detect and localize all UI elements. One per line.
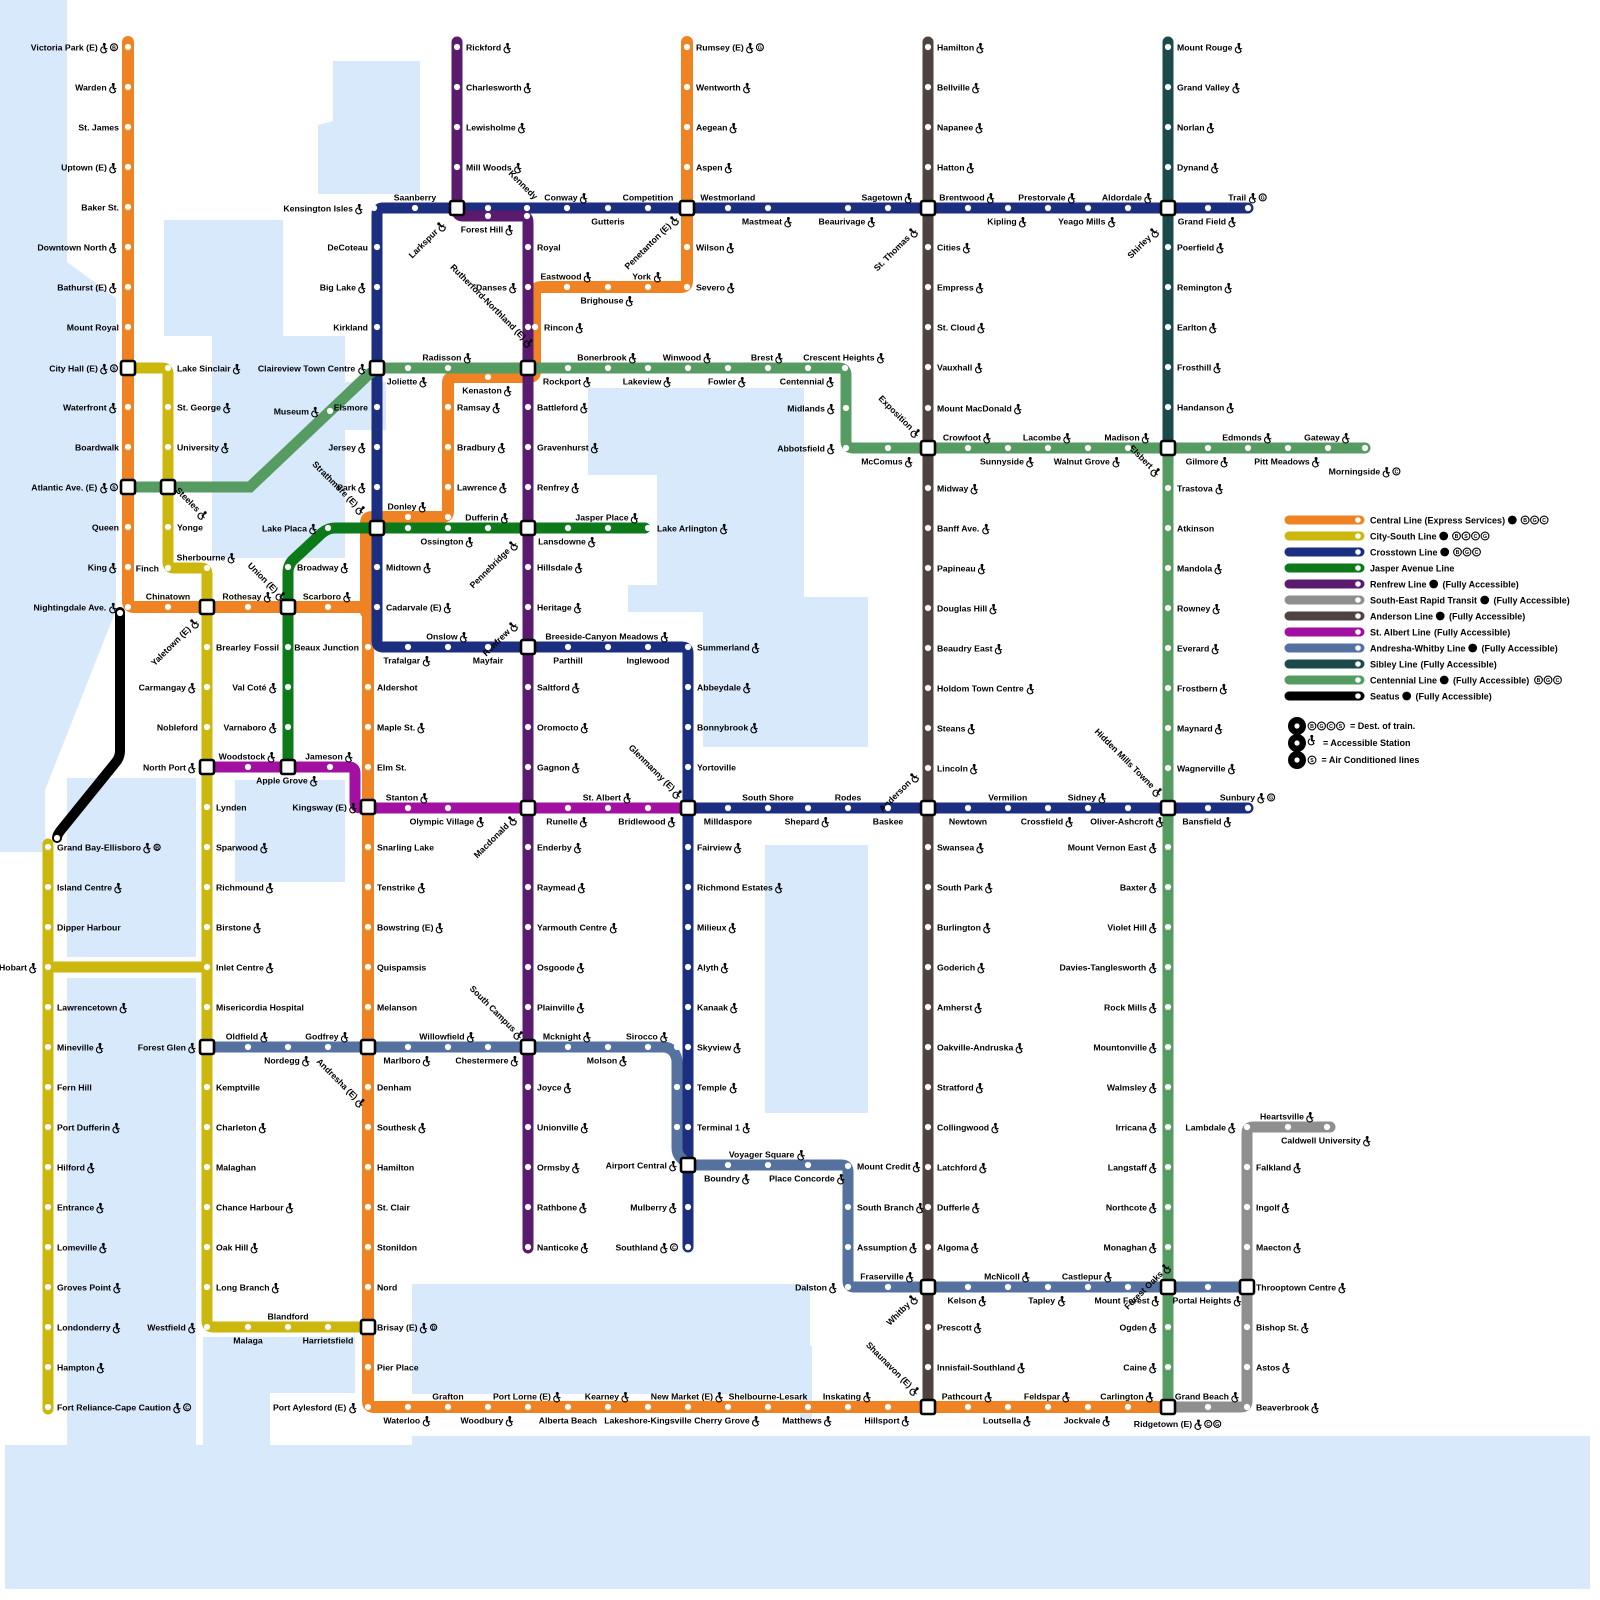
svg-text:Port Dufferin: Port Dufferin (57, 1122, 110, 1132)
svg-text:Handanson: Handanson (1177, 402, 1224, 412)
svg-text:Westmorland: Westmorland (700, 193, 755, 203)
svg-text:Dipper Harbour: Dipper Harbour (57, 922, 121, 932)
svg-text:Rincon: Rincon (544, 322, 573, 332)
svg-text:Midway: Midway (937, 483, 969, 493)
svg-text:Uptown (E): Uptown (E) (61, 162, 107, 172)
svg-text:B: B (1537, 678, 1541, 684)
svg-text:Heritage: Heritage (537, 602, 572, 612)
svg-text:Grand Bay-Ellisboro: Grand Bay-Ellisboro (57, 842, 141, 852)
svg-text:B: B (112, 46, 116, 52)
svg-text:Aspen: Aspen (696, 162, 723, 172)
svg-text:Lake Placa: Lake Placa (262, 523, 307, 533)
svg-text:King: King (88, 562, 107, 572)
svg-text:Rockport: Rockport (543, 377, 581, 387)
svg-text:Nanticoke: Nanticoke (537, 1242, 579, 1252)
svg-text:Lacombe: Lacombe (1023, 433, 1061, 443)
svg-text:Cherry Grove: Cherry Grove (694, 1416, 750, 1426)
svg-text:Centennial Line: Centennial Line (1370, 675, 1437, 685)
svg-text:Andresha (E): Andresha (E) (315, 1056, 360, 1101)
svg-text:Cadarvale (E): Cadarvale (E) (386, 602, 442, 612)
svg-text:Union (E): Union (E) (246, 560, 280, 594)
svg-text:Atkinson: Atkinson (1177, 523, 1214, 533)
svg-text:Poerfield: Poerfield (1177, 242, 1214, 252)
svg-text:Mountonville: Mountonville (1093, 1042, 1147, 1052)
svg-text:(Fully Accessible): (Fully Accessible) (1453, 675, 1529, 685)
svg-text:Beaverbrook: Beaverbrook (1256, 1402, 1309, 1412)
svg-text:S: S (112, 486, 116, 492)
svg-text:Anderson Line: Anderson Line (1370, 611, 1433, 621)
svg-text:Midlands: Midlands (787, 403, 825, 413)
svg-text:Mcknight: Mcknight (543, 1032, 581, 1042)
svg-text:Mount Credit: Mount Credit (857, 1161, 911, 1171)
svg-text:Beaux Junction: Beaux Junction (294, 642, 359, 652)
svg-text:B: B (155, 846, 159, 852)
svg-text:Tapley: Tapley (1028, 1296, 1055, 1306)
svg-text:Lakeview: Lakeview (623, 377, 662, 387)
svg-text:Broadway: Broadway (297, 562, 339, 572)
svg-text:Grand Valley: Grand Valley (1177, 82, 1230, 92)
svg-text:Runelle: Runelle (546, 817, 578, 827)
svg-text:Amherst: Amherst (937, 1002, 972, 1012)
svg-text:Sirocco: Sirocco (626, 1032, 658, 1042)
svg-text:Lake Arlington: Lake Arlington (657, 523, 718, 533)
svg-text:C: C (1542, 518, 1546, 524)
svg-text:Vauxhall: Vauxhall (937, 362, 972, 372)
svg-text:Chinatown: Chinatown (146, 592, 190, 602)
svg-text:Godfrey: Godfrey (305, 1032, 338, 1042)
svg-text:Fort Reliance-Cape Caution: Fort Reliance-Cape Caution (57, 1402, 171, 1412)
svg-text:Waterloo: Waterloo (383, 1416, 420, 1426)
svg-text:Bridlewood: Bridlewood (618, 817, 665, 827)
svg-text:G: G (1483, 534, 1487, 540)
svg-text:Terminal 1: Terminal 1 (697, 1122, 740, 1132)
svg-text:Marlboro: Marlboro (383, 1056, 420, 1066)
svg-text:Entrance: Entrance (57, 1202, 94, 1212)
svg-text:Nobleford: Nobleford (157, 722, 198, 732)
svg-text:South Shore: South Shore (742, 793, 794, 803)
svg-text:Caine: Caine (1123, 1362, 1147, 1372)
svg-text:Londonderry: Londonderry (57, 1322, 111, 1332)
svg-text:Bowstring (E): Bowstring (E) (377, 922, 434, 932)
svg-text:Algoma: Algoma (937, 1242, 969, 1252)
svg-text:Winwood: Winwood (663, 353, 702, 363)
svg-text:C: C (1329, 724, 1333, 730)
svg-text:Abbotsfield: Abbotsfield (777, 443, 825, 453)
svg-text:Hatton: Hatton (937, 162, 965, 172)
svg-text:Enderby: Enderby (537, 842, 572, 852)
svg-text:Grand Beach: Grand Beach (1175, 1392, 1229, 1402)
svg-text:Kanaak: Kanaak (697, 1002, 728, 1012)
svg-text:Place Concorde: Place Concorde (769, 1174, 835, 1184)
svg-text:Onslow: Onslow (426, 632, 458, 642)
svg-text:Misericordia Hospital: Misericordia Hospital (216, 1002, 304, 1012)
svg-text:Aldershot: Aldershot (377, 682, 418, 692)
svg-text:Central Line (Express Services: Central Line (Express Services) (1370, 515, 1505, 525)
svg-text:Bathurst (E): Bathurst (E) (57, 282, 107, 292)
svg-text:Bonnybrook: Bonnybrook (697, 722, 748, 732)
svg-text:Bonerbrook: Bonerbrook (577, 353, 626, 363)
svg-text:Throoptown Centre: Throoptown Centre (1256, 1282, 1336, 1292)
svg-text:G: G (1533, 518, 1537, 524)
svg-text:New Market (E): New Market (E) (651, 1392, 713, 1402)
svg-text:Edmonds: Edmonds (1222, 433, 1262, 443)
svg-text:Plainville: Plainville (537, 1002, 575, 1012)
svg-text:Abbeydale: Abbeydale (697, 682, 741, 692)
svg-text:Swansea: Swansea (937, 842, 974, 852)
svg-text:Stonildon: Stonildon (377, 1242, 417, 1252)
svg-text:Temple: Temple (697, 1082, 727, 1092)
svg-text:Kipling: Kipling (987, 217, 1016, 227)
svg-text:C: C (1475, 550, 1479, 556)
svg-text:Pitt Meadows: Pitt Meadows (1254, 457, 1310, 467)
svg-text:Lakeshore-Kingsville: Lakeshore-Kingsville (604, 1416, 692, 1426)
svg-text:Grand Field: Grand Field (1178, 217, 1226, 227)
svg-text:Andresha-Whitby Line: Andresha-Whitby Line (1370, 643, 1466, 653)
svg-text:Crescent Heights: Crescent Heights (803, 353, 875, 363)
svg-text:St. Thomas: St. Thomas (872, 233, 912, 273)
svg-text:Mineville: Mineville (57, 1042, 94, 1052)
svg-text:Snarling Lake: Snarling Lake (377, 842, 434, 852)
svg-text:Mount Vernon East: Mount Vernon East (1068, 842, 1147, 852)
svg-text:Goderich: Goderich (937, 962, 975, 972)
svg-text:Lewisholme: Lewisholme (466, 122, 516, 132)
svg-text:Jersey: Jersey (328, 442, 356, 452)
svg-text:Hidden Mills Towne: Hidden Mills Towne (1093, 726, 1157, 790)
svg-text:G: G (1319, 724, 1323, 730)
svg-text:Skyview: Skyview (697, 1042, 732, 1052)
svg-text:G: G (1465, 550, 1469, 556)
svg-text:(Fully Accessible): (Fully Accessible) (1434, 627, 1510, 637)
svg-text:Beaudry East: Beaudry East (937, 643, 993, 653)
svg-text:(Fully Accessible): (Fully Accessible) (1416, 691, 1492, 701)
svg-text:Lake Sinclair: Lake Sinclair (177, 363, 231, 373)
svg-text:Queen: Queen (92, 522, 119, 532)
svg-text:Rumsey (E): Rumsey (E) (696, 42, 744, 52)
svg-text:Hamilton: Hamilton (377, 1162, 414, 1172)
svg-text:Macdonald: Macdonald (472, 821, 511, 860)
svg-text:Wentworth: Wentworth (696, 82, 741, 92)
svg-text:Inglewood: Inglewood (627, 656, 670, 666)
svg-text:Milldaspore: Milldaspore (704, 817, 752, 827)
svg-text:Richmound: Richmound (216, 882, 264, 892)
svg-text:Maecton: Maecton (1256, 1242, 1291, 1252)
svg-text:Mill Woods: Mill Woods (466, 162, 512, 172)
svg-text:Groves Point: Groves Point (57, 1282, 111, 1292)
svg-text:= Air Conditioned lines: = Air Conditioned lines (1322, 755, 1420, 765)
svg-text:Kelson: Kelson (948, 1296, 977, 1306)
svg-text:Assumption: Assumption (857, 1242, 907, 1252)
svg-text:Sidney: Sidney (1068, 793, 1097, 803)
svg-text:Rowney: Rowney (1177, 603, 1210, 613)
svg-text:(Fully Accessible): (Fully Accessible) (1421, 659, 1497, 669)
svg-text:Brentwood: Brentwood (939, 193, 984, 203)
svg-text:Big Lake: Big Lake (320, 282, 356, 292)
svg-text:Aldordale: Aldordale (1102, 193, 1142, 203)
svg-text:Papineau: Papineau (937, 563, 976, 573)
svg-text:Ogden: Ogden (1120, 1322, 1148, 1332)
svg-text:Prestorvale: Prestorvale (1018, 193, 1065, 203)
svg-text:Alberta Beach: Alberta Beach (539, 1416, 597, 1426)
svg-text:Kenaston: Kenaston (462, 386, 502, 396)
svg-text:Ossington: Ossington (421, 537, 464, 547)
svg-text:Grafton: Grafton (432, 1392, 463, 1402)
svg-text:Baskee: Baskee (873, 817, 904, 827)
svg-text:Maynard: Maynard (1177, 723, 1213, 733)
svg-text:Davies-Tanglesworth: Davies-Tanglesworth (1060, 962, 1147, 972)
svg-text:Rutherford-Northland (E): Rutherford-Northland (E) (448, 262, 528, 342)
svg-text:Dynand: Dynand (1177, 162, 1209, 172)
svg-text:Boardwalk: Boardwalk (75, 442, 119, 452)
svg-text:Mastmeat: Mastmeat (742, 217, 782, 227)
svg-text:Kensington Isles: Kensington Isles (283, 203, 353, 213)
svg-text:Blandford: Blandford (268, 1312, 309, 1322)
svg-text:Jasper Place: Jasper Place (575, 513, 628, 523)
svg-text:St. Cloud: St. Cloud (937, 322, 975, 332)
svg-text:Pathcourt: Pathcourt (942, 1392, 983, 1402)
svg-text:Fowler: Fowler (708, 377, 737, 387)
svg-text:Rodes: Rodes (835, 793, 862, 803)
svg-text:Bellville: Bellville (937, 82, 970, 92)
svg-text:Pier Place: Pier Place (377, 1362, 419, 1372)
svg-text:Portal Heights: Portal Heights (1173, 1296, 1232, 1306)
svg-text:Rock Mills: Rock Mills (1104, 1002, 1147, 1012)
svg-text:Bradbury: Bradbury (457, 442, 496, 452)
svg-text:Harrietsfield: Harrietsfield (303, 1336, 354, 1346)
svg-text:City-South Line: City-South Line (1370, 531, 1437, 541)
svg-text:Severo: Severo (696, 282, 725, 292)
svg-text:Latchford: Latchford (937, 1162, 977, 1172)
svg-text:B: B (1310, 724, 1314, 730)
svg-text:Lawrence: Lawrence (457, 482, 497, 492)
svg-text:G: G (1546, 678, 1550, 684)
svg-text:Chance Harbour: Chance Harbour (216, 1202, 284, 1212)
svg-text:Walnut Grove: Walnut Grove (1054, 457, 1110, 467)
svg-text:Dalston: Dalston (795, 1282, 827, 1292)
svg-text:Northcote: Northcote (1106, 1202, 1147, 1212)
svg-text:Brighouse: Brighouse (581, 296, 624, 306)
svg-text:Lomeville: Lomeville (57, 1242, 97, 1252)
svg-text:Yortoville: Yortoville (697, 762, 736, 772)
svg-text:Competition: Competition (623, 193, 674, 203)
svg-text:Breeside-Canyon Meadows: Breeside-Canyon Meadows (545, 632, 658, 642)
svg-text:Hillsport: Hillsport (864, 1416, 899, 1426)
svg-text:Ingolf: Ingolf (1256, 1202, 1280, 1212)
svg-text:Exposition: Exposition (877, 393, 915, 431)
svg-text:B: B (1456, 550, 1460, 556)
svg-text:Violet Hill: Violet Hill (1107, 922, 1146, 932)
svg-text:Nord: Nord (377, 1282, 397, 1292)
svg-text:Sunbury: Sunbury (1220, 793, 1255, 803)
svg-text:G: G (1215, 1422, 1219, 1428)
svg-text:Fraserville: Fraserville (860, 1272, 904, 1282)
svg-text:Woodstock: Woodstock (219, 752, 266, 762)
svg-text:South-East Rapid Transit: South-East Rapid Transit (1370, 595, 1477, 605)
svg-text:Ormsby: Ormsby (537, 1162, 570, 1172)
svg-text:Gagnon: Gagnon (537, 762, 570, 772)
svg-text:Banff Ave.: Banff Ave. (937, 523, 979, 533)
svg-text:DeCoteau: DeCoteau (327, 242, 368, 252)
svg-text:Eastwood: Eastwood (541, 272, 582, 282)
svg-text:Mulberry: Mulberry (630, 1202, 667, 1212)
svg-text:Carmangay: Carmangay (139, 682, 186, 692)
svg-text:S: S (112, 367, 116, 373)
svg-text:Burlington: Burlington (937, 922, 981, 932)
svg-text:Sibley Line: Sibley Line (1370, 659, 1418, 669)
svg-text:Heartsville: Heartsville (1260, 1112, 1304, 1122)
svg-text:Dufferin: Dufferin (465, 513, 498, 523)
svg-text:Yeago Mills: Yeago Mills (1058, 217, 1105, 227)
svg-text:McNicoll: McNicoll (984, 1272, 1020, 1282)
svg-text:City Hall (E): City Hall (E) (49, 363, 98, 373)
svg-text:Kirkland: Kirkland (333, 322, 368, 332)
svg-text:Warden: Warden (75, 82, 107, 92)
svg-text:Denham: Denham (377, 1082, 412, 1092)
svg-text:Irricana: Irricana (1116, 1122, 1148, 1132)
svg-text:Everard: Everard (1177, 643, 1209, 653)
svg-text:Saltford: Saltford (537, 682, 570, 692)
svg-text:Newtown: Newtown (949, 817, 987, 827)
svg-text:Tenstrike: Tenstrike (377, 882, 415, 892)
svg-text:Elm St.: Elm St. (377, 762, 406, 772)
svg-text:Baxter: Baxter (1120, 882, 1148, 892)
svg-text:Southesk: Southesk (377, 1122, 416, 1132)
svg-text:Long Branch: Long Branch (216, 1282, 270, 1292)
svg-text:Gutteris: Gutteris (591, 217, 624, 227)
svg-text:Mount MacDonald: Mount MacDonald (937, 403, 1012, 413)
svg-text:Sunnyside: Sunnyside (980, 457, 1024, 467)
svg-text:Trafalgar: Trafalgar (383, 656, 420, 666)
svg-text:Douglas Hill: Douglas Hill (937, 603, 987, 613)
svg-text:Crosstown Line: Crosstown Line (1370, 547, 1438, 557)
svg-text:Larkspur: Larkspur (407, 226, 441, 260)
svg-text:Bansfield: Bansfield (1182, 817, 1221, 827)
svg-text:Frosthill: Frosthill (1177, 362, 1211, 372)
svg-text:Remington: Remington (1177, 282, 1222, 292)
svg-text:Castlepur: Castlepur (1062, 1272, 1103, 1282)
svg-text:Gravenhurst: Gravenhurst (537, 442, 589, 452)
svg-text:Forest Hill: Forest Hill (461, 225, 503, 235)
svg-text:Fairview: Fairview (697, 842, 732, 852)
svg-text:Port Lorne (E): Port Lorne (E) (493, 1392, 551, 1402)
svg-text:Beaurivage: Beaurivage (819, 217, 866, 227)
svg-text:Wagnerville: Wagnerville (1177, 763, 1226, 773)
svg-text:Aegean: Aegean (696, 122, 727, 132)
svg-text:Maple St.: Maple St. (377, 722, 415, 732)
svg-text:Mount Rouge: Mount Rouge (1177, 42, 1233, 52)
svg-text:Earlton: Earlton (1177, 322, 1207, 332)
svg-text:McComus: McComus (861, 457, 903, 467)
svg-text:St. Albert: St. Albert (583, 793, 621, 803)
svg-text:Varnaboro: Varnaboro (224, 722, 267, 732)
svg-text:Holdom Town Centre: Holdom Town Centre (937, 683, 1024, 693)
svg-text:Pennebridge: Pennebridge (468, 546, 512, 590)
svg-text:B: B (1455, 534, 1459, 540)
svg-text:Jasper Avenue Line: Jasper Avenue Line (1370, 563, 1454, 573)
svg-text:Oromocto: Oromocto (537, 722, 579, 732)
svg-text:S: S (1464, 534, 1468, 540)
svg-text:Centennial: Centennial (780, 377, 824, 387)
svg-text:Ramsay: Ramsay (457, 402, 490, 412)
svg-text:Trastova: Trastova (1177, 483, 1213, 493)
svg-text:Innisfail-Southland: Innisfail-Southland (937, 1362, 1015, 1372)
svg-text:Falkland: Falkland (1256, 1162, 1291, 1172)
svg-text:Norlan: Norlan (1177, 122, 1205, 132)
svg-text:Charlesworth: Charlesworth (466, 82, 522, 92)
svg-text:Hillsdale: Hillsdale (537, 562, 573, 572)
svg-text:G: G (1269, 796, 1273, 802)
svg-text:Molson: Molson (587, 1056, 617, 1066)
svg-text:= Dest. of train.: = Dest. of train. (1350, 721, 1415, 731)
svg-text:Gateway: Gateway (1304, 433, 1340, 443)
svg-text:Mandola: Mandola (1177, 563, 1212, 573)
svg-text:Val Coté: Val Coté (232, 682, 266, 692)
svg-text:Yonge: Yonge (177, 522, 203, 532)
svg-text:Willowfield: Willowfield (419, 1032, 464, 1042)
svg-text:Southland: Southland (616, 1242, 658, 1252)
svg-text:Renfrey: Renfrey (537, 482, 570, 492)
svg-text:Olympic Village: Olympic Village (410, 817, 475, 827)
svg-text:Malaghan: Malaghan (216, 1162, 256, 1172)
svg-text:Brearley: Brearley (216, 642, 251, 652)
svg-text:Airport Central: Airport Central (606, 1160, 667, 1170)
svg-text:= Accessible Station: = Accessible Station (1323, 738, 1410, 748)
svg-text:Gilmore: Gilmore (1186, 457, 1219, 467)
svg-text:Richmond Estates: Richmond Estates (697, 882, 773, 892)
svg-text:Westfield: Westfield (147, 1322, 185, 1332)
svg-text:Quispamsis: Quispamsis (377, 962, 426, 972)
svg-text:Osgoode: Osgoode (537, 962, 575, 972)
svg-text:Joyce: Joyce (537, 1082, 562, 1092)
svg-text:Raymead: Raymead (537, 882, 576, 892)
svg-text:C: C (185, 1406, 189, 1412)
svg-text:Steans: Steans (937, 723, 966, 733)
svg-text:South Park: South Park (937, 882, 983, 892)
svg-text:Lambdale: Lambdale (1185, 1122, 1226, 1132)
svg-text:Crowfoot: Crowfoot (943, 433, 981, 443)
svg-text:Kemptville: Kemptville (216, 1082, 260, 1092)
svg-text:S: S (1310, 758, 1314, 764)
svg-text:Madison: Madison (1104, 433, 1139, 443)
svg-text:Finch: Finch (136, 563, 159, 573)
svg-text:Shirley: Shirley (1125, 233, 1153, 261)
svg-text:Alyth: Alyth (697, 962, 719, 972)
svg-text:Crossfield: Crossfield (1021, 817, 1063, 827)
svg-text:South Campus: South Campus (468, 983, 519, 1034)
svg-text:Forest Glen: Forest Glen (138, 1042, 186, 1052)
svg-text:Langstaff: Langstaff (1108, 1162, 1147, 1172)
svg-text:Sagetown: Sagetown (862, 193, 903, 203)
svg-text:Malaga: Malaga (233, 1336, 263, 1346)
svg-text:Rathbone: Rathbone (537, 1202, 577, 1212)
svg-text:Museum: Museum (274, 406, 310, 416)
svg-text:Kennedy: Kennedy (507, 168, 540, 201)
svg-text:North Port: North Port (143, 762, 186, 772)
svg-text:Baker St.: Baker St. (81, 202, 119, 212)
svg-text:Prescott: Prescott (937, 1322, 972, 1332)
svg-text:Lincoln: Lincoln (937, 763, 968, 773)
svg-text:Sparwood: Sparwood (216, 842, 258, 852)
svg-text:Port Aylesford (E): Port Aylesford (E) (273, 1402, 346, 1412)
svg-text:Renfrew Line: Renfrew Line (1370, 579, 1427, 589)
svg-text:Glenmanny (E): Glenmanny (E) (627, 742, 677, 792)
svg-text:Rickford: Rickford (466, 42, 501, 52)
svg-text:Royal: Royal (537, 242, 561, 252)
svg-text:York: York (632, 272, 651, 282)
svg-text:Charleton: Charleton (216, 1122, 257, 1132)
svg-text:Matthews: Matthews (782, 1416, 822, 1426)
svg-text:Island Centre: Island Centre (57, 882, 112, 892)
svg-text:Kingsway (E): Kingsway (E) (292, 802, 347, 812)
